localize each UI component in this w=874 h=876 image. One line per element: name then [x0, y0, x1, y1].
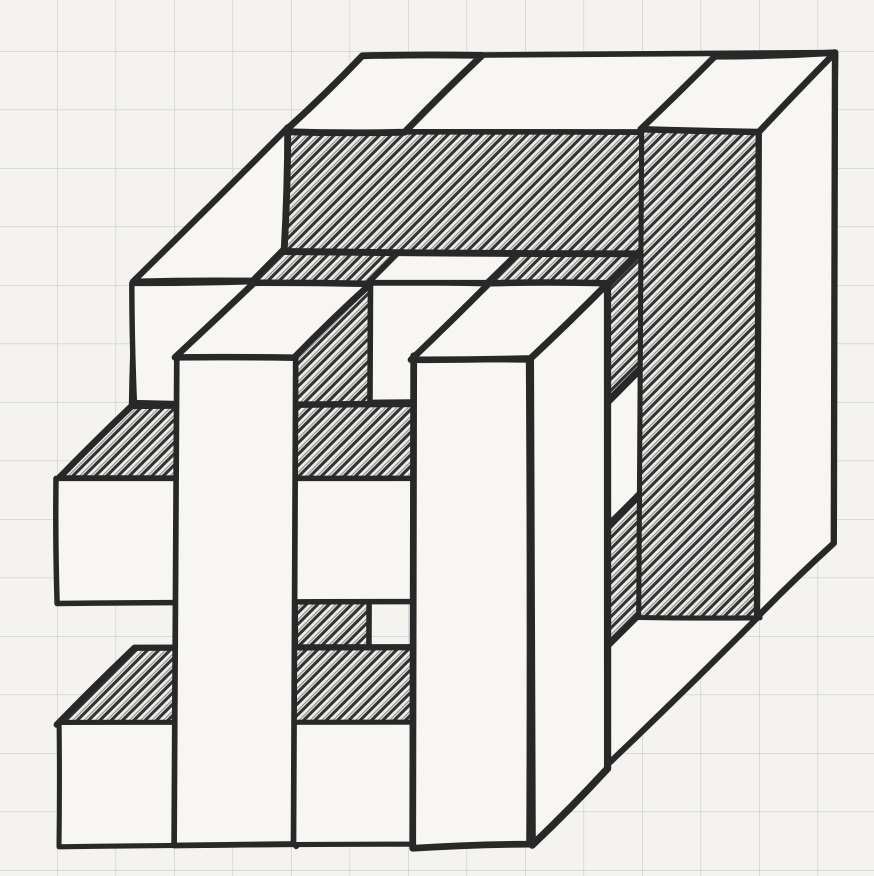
- sketch-canvas: [0, 0, 874, 876]
- cube-face-right-backbar-front: [639, 128, 760, 618]
- cube-face-front-vbar-right-side: [530, 283, 607, 845]
- cube-face-front-vbar-right-front: [413, 356, 530, 849]
- scanned-sketch-page: [0, 0, 874, 876]
- cube-face-front-vbar-left-front: [174, 356, 296, 846]
- cube-face-right-backbar-side: [757, 53, 835, 618]
